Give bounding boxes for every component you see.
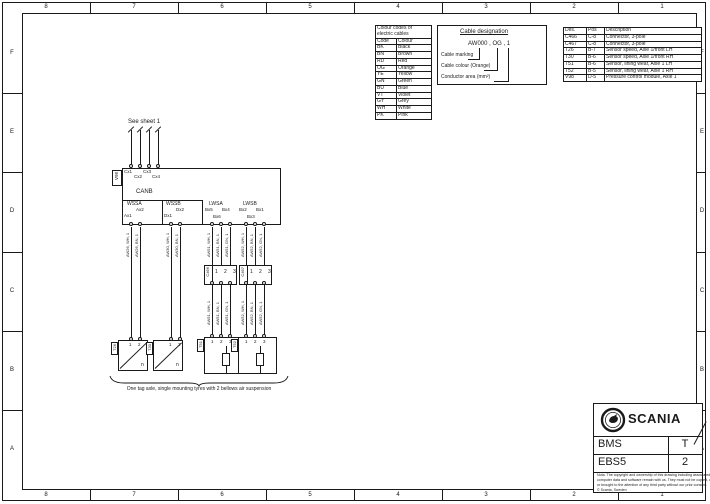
sensor-pin-number: 3 bbox=[263, 340, 266, 345]
colour-row: GNGreen bbox=[376, 79, 432, 86]
wire bbox=[171, 227, 172, 339]
wire-label: AW30, WH, 1 bbox=[166, 229, 170, 257]
colour-row: GYGrey bbox=[376, 99, 432, 106]
sensor-ref-tab: T26 bbox=[111, 342, 118, 355]
wire-label: AW51, GN, 1 bbox=[225, 297, 229, 325]
module-pin-label: Dx2 bbox=[176, 208, 184, 213]
colour-code: PK bbox=[376, 112, 397, 119]
colour-name: Brown bbox=[397, 52, 432, 59]
module-pin-label: Cx4 bbox=[152, 175, 160, 180]
colour-row: BNBrown bbox=[376, 52, 432, 59]
frame-row-label: E bbox=[698, 129, 706, 135]
part-pos: B-7 bbox=[587, 48, 605, 55]
frame-tick bbox=[697, 252, 706, 253]
wire-label: AW30, BN, 1 bbox=[175, 229, 179, 257]
colour-code: WH bbox=[376, 106, 397, 113]
title-row-1: BMS T bbox=[594, 436, 702, 455]
colour-name: White bbox=[397, 106, 432, 113]
frame-tick bbox=[178, 2, 179, 13]
can-wire bbox=[131, 130, 132, 167]
part-description: Sensor speed, Axle 1/front RH bbox=[605, 55, 702, 62]
frame-tick bbox=[90, 490, 91, 501]
part-des: C466 bbox=[564, 34, 587, 41]
wire bbox=[255, 285, 256, 336]
connector-socket bbox=[262, 281, 266, 285]
sensor-ref-label: T26 bbox=[113, 344, 117, 351]
connector-ref-label: C467 bbox=[241, 267, 245, 277]
wire bbox=[131, 227, 132, 339]
wire-label: AW52, GN, 1 bbox=[259, 297, 263, 325]
wire bbox=[230, 285, 231, 336]
wire-label: AW51, BN, 1 bbox=[216, 297, 220, 325]
wire bbox=[221, 227, 222, 265]
scania-griffin-icon bbox=[600, 407, 626, 433]
frame-col-label: 8 bbox=[36, 4, 56, 10]
connector-socket bbox=[228, 281, 232, 285]
title-block: SCANIA BMS T EBS5 2 Nota. The copyright … bbox=[593, 403, 703, 493]
drawing-sheet: 8 7 6 5 4 3 2 1 8 7 6 5 4 3 2 1 F E D C … bbox=[0, 0, 710, 504]
frame-tick bbox=[354, 490, 355, 501]
module-pin bbox=[210, 222, 214, 226]
parts-header: Pos bbox=[587, 28, 605, 35]
module-pin-label: Bx6 bbox=[213, 215, 221, 220]
parts-row: C466C-8Connector, 3-pole bbox=[564, 34, 702, 41]
frame-row-label: B bbox=[698, 367, 706, 373]
frame-col-label: 3 bbox=[476, 492, 496, 498]
wire-label: AW51, WH, 1 bbox=[207, 229, 211, 257]
wire-label: AW51, BN, 1 bbox=[216, 229, 220, 257]
connector-pin-number: 2 bbox=[224, 270, 227, 275]
wire bbox=[246, 227, 247, 265]
parts-row: V98D-5Pressure control module, Axle 1 bbox=[564, 75, 702, 82]
wire-label: AW52, BN, 1 bbox=[250, 297, 254, 325]
frame-col-label: 3 bbox=[476, 4, 496, 10]
sensor-internal-wire bbox=[260, 366, 261, 373]
sensor-pin-number: 2 bbox=[220, 340, 223, 345]
title-row-2: EBS5 2 bbox=[594, 454, 702, 473]
cable-designation-label: Cable marking bbox=[441, 53, 473, 58]
colour-name: Red bbox=[397, 58, 432, 65]
part-des: C467 bbox=[564, 41, 587, 48]
wire bbox=[255, 227, 256, 265]
scania-wordmark: SCANIA bbox=[628, 412, 681, 425]
part-des: V98 bbox=[564, 75, 587, 82]
parts-row: T30B-6Sensor speed, Axle 1/front RH bbox=[564, 55, 702, 62]
module-ref-label: V98 bbox=[115, 172, 120, 180]
part-description: Sensor, lining wear, Axle 1 LH bbox=[605, 61, 702, 68]
sensor-t52: 1 2 3 bbox=[238, 337, 277, 374]
wire-label: AW51, WH, 1 bbox=[207, 297, 211, 325]
sensor-pin-number: 1 bbox=[129, 343, 132, 348]
colour-code: GN bbox=[376, 79, 397, 86]
leader-line bbox=[508, 48, 509, 81]
sensor-ref-tab: T30 bbox=[146, 342, 153, 355]
frame-col-label: 6 bbox=[212, 4, 232, 10]
colour-name: Green bbox=[397, 79, 432, 86]
parts-row: T51B-6Sensor, lining wear, Axle 1 LH bbox=[564, 61, 702, 68]
parts-row: T52B-5Sensor, lining wear, Axle 1 RH bbox=[564, 68, 702, 75]
frame-row-label: F bbox=[6, 50, 18, 56]
can-wire bbox=[149, 130, 150, 167]
sensor-pin-number: 1 bbox=[211, 340, 214, 345]
colour-header-code: Code bbox=[376, 38, 397, 45]
module-pin-label: Bx5 bbox=[205, 208, 213, 213]
frame-row-label: C bbox=[6, 288, 18, 294]
colour-name: Grey bbox=[397, 99, 432, 106]
module-pin-label: Cx1 bbox=[124, 170, 132, 175]
wire bbox=[230, 227, 231, 265]
module-pin bbox=[219, 222, 223, 226]
frame-col-label: 5 bbox=[300, 4, 320, 10]
sensor-ref-tab: T51 bbox=[197, 339, 204, 352]
parts-header-row: Des. Pos Description bbox=[564, 28, 702, 35]
colour-name: Violet bbox=[397, 92, 432, 99]
sensor-internal-wire bbox=[226, 346, 227, 353]
connector-pin-number: 3 bbox=[233, 270, 236, 275]
wire-label: AW52, WH, 1 bbox=[241, 229, 245, 257]
colour-row: RDRed bbox=[376, 58, 432, 65]
wire bbox=[264, 227, 265, 265]
resistor-symbol bbox=[222, 353, 230, 366]
connector-socket bbox=[219, 281, 223, 285]
module-pin-label: Bx1 bbox=[256, 208, 264, 213]
connector-socket bbox=[244, 281, 248, 285]
module-pin-label: Bx3 bbox=[247, 215, 255, 220]
can-wire bbox=[140, 130, 141, 167]
wire bbox=[212, 285, 213, 336]
colour-table-title: Colour codes ofelectric cables bbox=[377, 26, 412, 37]
part-pos: B-6 bbox=[587, 55, 605, 62]
frame-col-label: 2 bbox=[564, 4, 584, 10]
frame-tick bbox=[697, 331, 706, 332]
part-description: Sensor, lining wear, Axle 1 RH bbox=[605, 68, 702, 75]
parts-header: Des. bbox=[564, 28, 587, 35]
wire-label: AW26, WH, 1 bbox=[126, 229, 130, 257]
connector-pin-number: 1 bbox=[215, 270, 218, 275]
sensor-ref-label: T30 bbox=[148, 344, 152, 351]
part-description: Connector, 3-pole bbox=[605, 41, 702, 48]
colour-row: YEYellow bbox=[376, 72, 432, 79]
colour-name: Blue bbox=[397, 85, 432, 92]
frame-tick bbox=[2, 172, 22, 173]
connector-socket bbox=[253, 281, 257, 285]
copyright-note: Nota. The copyright and ownership of thi… bbox=[594, 472, 702, 492]
module-pin bbox=[253, 222, 257, 226]
wire bbox=[140, 227, 141, 339]
frame-tick bbox=[266, 490, 267, 501]
wire-label: AW52, BN, 1 bbox=[250, 229, 254, 257]
colour-name: Black bbox=[397, 45, 432, 52]
cable-designation-label: Cable colour (Orange) bbox=[441, 64, 490, 69]
frame-tick bbox=[2, 252, 22, 253]
frame-tick bbox=[90, 2, 91, 13]
sensor-ref-label: T51 bbox=[199, 341, 203, 348]
module-pin-label: Bx2 bbox=[239, 208, 247, 213]
colour-code: BK bbox=[376, 45, 397, 52]
frame-tick bbox=[530, 490, 531, 501]
frame-row-label: B bbox=[6, 367, 18, 373]
colour-name: Orange bbox=[397, 65, 432, 72]
module-pin bbox=[262, 222, 266, 226]
parts-row: C467C-8Connector, 3-pole bbox=[564, 41, 702, 48]
module-pin-label: Bx4 bbox=[222, 208, 230, 213]
module-can-label: CANB bbox=[136, 189, 153, 195]
colour-code: GY bbox=[376, 99, 397, 106]
cable-designation-box: Cable designation AW000 , OG , 1 Cable m… bbox=[437, 25, 547, 85]
colour-name: Pink bbox=[397, 112, 432, 119]
module-pin bbox=[129, 222, 133, 226]
colour-code: RD bbox=[376, 58, 397, 65]
sensor-internal-wire bbox=[260, 346, 261, 353]
can-wire bbox=[158, 130, 159, 167]
module-pin-label: Ax2 bbox=[136, 208, 144, 213]
frame-row-label: D bbox=[6, 208, 18, 214]
module-ref-tab: V98 bbox=[112, 170, 122, 186]
frame-col-label: 7 bbox=[124, 4, 144, 10]
part-des: T30 bbox=[564, 55, 587, 62]
colour-code: OG bbox=[376, 65, 397, 72]
module-divider bbox=[162, 200, 163, 225]
colour-row: WHWhite bbox=[376, 106, 432, 113]
part-pos: D-5 bbox=[587, 75, 605, 82]
frame-col-label: 4 bbox=[388, 492, 408, 498]
cable-designation-label: Conductor area (mm²) bbox=[441, 75, 490, 80]
wire-label: AW26, BN, 1 bbox=[135, 229, 139, 257]
parts-header: Description bbox=[605, 28, 702, 35]
frame-tick bbox=[697, 172, 706, 173]
colour-row: BUBlue bbox=[376, 85, 432, 92]
frame-tick bbox=[530, 2, 531, 13]
frame-tick bbox=[442, 490, 443, 501]
colour-row: OGOrange bbox=[376, 65, 432, 72]
wire bbox=[246, 285, 247, 336]
leader-line bbox=[494, 81, 509, 82]
connector-socket bbox=[210, 281, 214, 285]
sensor-pin-number: 1 bbox=[169, 343, 172, 348]
resistor-symbol bbox=[256, 353, 264, 366]
frame-tick bbox=[2, 93, 22, 94]
connector-ref-label: C466 bbox=[206, 267, 210, 277]
colour-header-colour: Colour bbox=[397, 38, 432, 45]
frame-col-label: 5 bbox=[300, 492, 320, 498]
axle-configuration-caption: One tag axle, single mounting tyres with… bbox=[100, 387, 298, 392]
wire-label: AW51, GN, 1 bbox=[225, 229, 229, 257]
colour-row: VTViolet bbox=[376, 92, 432, 99]
sensor-ref-tab: T52 bbox=[231, 339, 238, 352]
frame-row-label: D bbox=[698, 208, 706, 214]
module-pin-label: Dx1 bbox=[164, 214, 172, 219]
part-des: T26 bbox=[564, 48, 587, 55]
parts-row: T26B-7Sensor speed, Axle 1/front LH bbox=[564, 48, 702, 55]
frame-col-label: 8 bbox=[36, 492, 56, 498]
frame-col-label: 4 bbox=[388, 4, 408, 10]
module-pin bbox=[178, 222, 182, 226]
connector-pin-number: 1 bbox=[250, 270, 253, 275]
frame-col-label: 1 bbox=[652, 4, 672, 10]
sensor-pin-number: 2 bbox=[254, 340, 257, 345]
wire-label: AW52, WH, 1 bbox=[241, 297, 245, 325]
sensor-internal-wire bbox=[226, 366, 227, 373]
wire-label: AW52, GN, 1 bbox=[259, 229, 263, 257]
module-pin bbox=[138, 222, 142, 226]
wire bbox=[212, 227, 213, 265]
module-pin-label: Cx3 bbox=[143, 170, 151, 175]
cable-designation-title: Cable designation bbox=[460, 29, 508, 35]
frame-col-label: 2 bbox=[564, 492, 584, 498]
frame-col-label: 7 bbox=[124, 492, 144, 498]
see-sheet-note: See sheet 1 bbox=[128, 119, 160, 125]
sheet-number: 2 bbox=[669, 457, 701, 468]
frame-tick bbox=[178, 490, 179, 501]
frame-tick bbox=[442, 2, 443, 13]
colour-name: Yellow bbox=[397, 72, 432, 79]
part-pos: B-5 bbox=[587, 68, 605, 75]
frame-tick bbox=[354, 2, 355, 13]
frame-tick bbox=[697, 93, 706, 94]
copyright-line: © Scania, Sweden bbox=[597, 489, 627, 493]
frame-tick bbox=[2, 331, 22, 332]
module-pin bbox=[244, 222, 248, 226]
wire bbox=[221, 285, 222, 336]
part-description: Sensor speed, Axle 1/front LH bbox=[605, 48, 702, 55]
colour-code: YE bbox=[376, 72, 397, 79]
part-description: Pressure control module, Axle 1 bbox=[605, 75, 702, 82]
frame-tick bbox=[266, 2, 267, 13]
cable-designation-example: AW000 , OG , 1 bbox=[468, 41, 510, 47]
colour-code-table: Colour codes ofelectric cables Code Colo… bbox=[375, 25, 432, 120]
sensor-ref-label: T52 bbox=[233, 341, 237, 348]
frame-row-label: C bbox=[698, 288, 706, 294]
sensor-symbol: n bbox=[176, 363, 179, 368]
module-pin-label: Ax1 bbox=[124, 214, 132, 219]
sensor-symbol: n bbox=[141, 363, 144, 368]
leader-line bbox=[479, 48, 480, 59]
connector-pin-number: 2 bbox=[259, 270, 262, 275]
colour-code: BU bbox=[376, 85, 397, 92]
colour-code: VT bbox=[376, 92, 397, 99]
subsystem-name: EBS5 bbox=[598, 457, 626, 468]
part-des: T52 bbox=[564, 68, 587, 75]
sensor-pin-number: 1 bbox=[245, 340, 248, 345]
frame-col-label: 6 bbox=[212, 492, 232, 498]
part-pos: B-6 bbox=[587, 61, 605, 68]
logo-row: SCANIA bbox=[594, 404, 702, 437]
system-name: BMS bbox=[598, 439, 622, 450]
colour-row: BKBlack bbox=[376, 45, 432, 52]
parts-table: Des. Pos Description C466C-8Connector, 3… bbox=[563, 27, 702, 82]
module-pin-label: Cx2 bbox=[134, 175, 142, 180]
part-description: Connector, 3-pole bbox=[605, 34, 702, 41]
module-pin bbox=[228, 222, 232, 226]
connector-pin-number: 3 bbox=[268, 270, 271, 275]
part-pos: C-8 bbox=[587, 34, 605, 41]
frame-row-label: E bbox=[6, 129, 18, 135]
wire bbox=[180, 227, 181, 339]
module-pin bbox=[169, 222, 173, 226]
part-des: T51 bbox=[564, 61, 587, 68]
frame-tick bbox=[618, 2, 619, 13]
frame-tick bbox=[2, 410, 22, 411]
wire bbox=[264, 285, 265, 336]
colour-row: PKPink bbox=[376, 112, 432, 119]
module-divider bbox=[202, 200, 203, 225]
frame-row-label: A bbox=[6, 446, 18, 452]
part-pos: C-8 bbox=[587, 41, 605, 48]
colour-code: BN bbox=[376, 52, 397, 59]
leader-line bbox=[497, 48, 498, 70]
leader-line bbox=[484, 70, 498, 71]
leader-line bbox=[468, 59, 480, 60]
